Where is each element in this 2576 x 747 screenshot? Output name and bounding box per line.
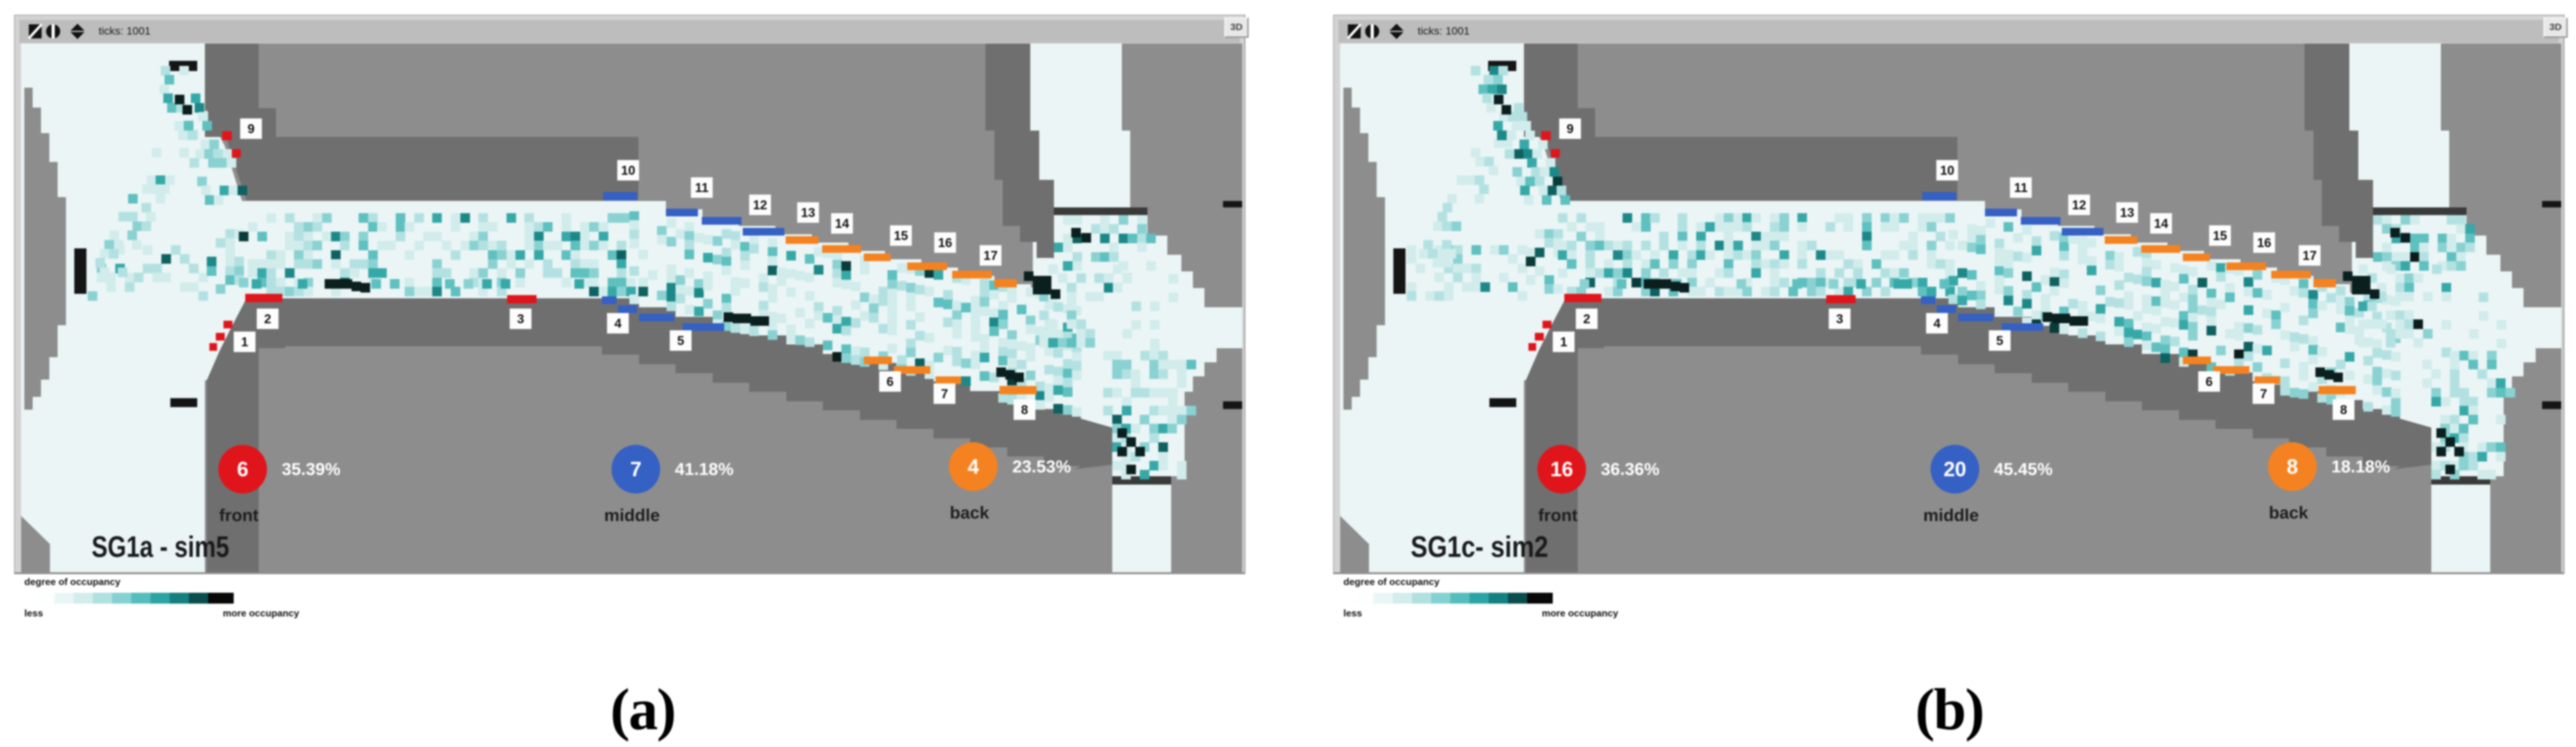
svg-text:2: 2 — [264, 312, 271, 326]
svg-text:41.18%: 41.18% — [675, 460, 734, 479]
svg-text:45.45%: 45.45% — [1994, 460, 2053, 479]
svg-text:9: 9 — [247, 122, 254, 136]
svg-text:17: 17 — [984, 249, 998, 263]
svg-text:6: 6 — [2205, 375, 2212, 389]
svg-text:15: 15 — [894, 229, 908, 243]
svg-text:SG1a - sim5: SG1a - sim5 — [92, 530, 229, 563]
svg-text:12: 12 — [753, 198, 767, 213]
svg-text:3: 3 — [1836, 312, 1843, 326]
svg-text:SG1c- sim2: SG1c- sim2 — [1411, 530, 1548, 563]
svg-text:front: front — [1538, 506, 1577, 525]
svg-text:18.18%: 18.18% — [2331, 457, 2390, 476]
svg-text:16: 16 — [938, 236, 952, 250]
svg-text:5: 5 — [677, 334, 684, 348]
svg-text:3: 3 — [517, 312, 524, 326]
svg-text:11: 11 — [2014, 181, 2027, 195]
svg-text:4: 4 — [1933, 317, 1941, 331]
svg-text:front: front — [219, 506, 258, 525]
svg-text:5: 5 — [1996, 334, 2003, 348]
svg-text:6: 6 — [886, 375, 893, 389]
svg-text:7: 7 — [941, 387, 948, 401]
svg-text:middle: middle — [1923, 506, 1979, 525]
svg-text:6: 6 — [237, 458, 248, 481]
svg-text:9: 9 — [1566, 122, 1573, 136]
svg-text:11: 11 — [695, 181, 708, 195]
svg-text:23.53%: 23.53% — [1012, 457, 1071, 476]
svg-text:4: 4 — [968, 455, 979, 478]
svg-text:16: 16 — [2257, 236, 2271, 250]
svg-text:7: 7 — [2260, 387, 2267, 401]
svg-text:back: back — [950, 503, 990, 522]
svg-text:8: 8 — [2287, 455, 2298, 478]
svg-text:2: 2 — [1583, 312, 1590, 326]
svg-text:17: 17 — [2303, 249, 2317, 263]
svg-text:13: 13 — [2120, 206, 2134, 220]
svg-text:8: 8 — [1021, 403, 1028, 417]
svg-text:13: 13 — [801, 206, 815, 220]
svg-text:36.36%: 36.36% — [1601, 460, 1660, 479]
svg-text:1: 1 — [1560, 335, 1567, 349]
svg-text:14: 14 — [835, 217, 850, 231]
svg-text:20: 20 — [1943, 458, 1966, 481]
svg-text:10: 10 — [621, 164, 635, 178]
svg-text:10: 10 — [1940, 164, 1954, 178]
svg-text:8: 8 — [2340, 403, 2347, 417]
svg-text:15: 15 — [2213, 229, 2227, 243]
svg-text:4: 4 — [614, 317, 622, 331]
svg-text:12: 12 — [2072, 198, 2086, 213]
svg-text:middle: middle — [604, 506, 660, 525]
svg-text:16: 16 — [1550, 458, 1573, 481]
svg-text:1: 1 — [241, 335, 248, 349]
svg-text:7: 7 — [630, 458, 642, 481]
svg-text:back: back — [2269, 503, 2309, 522]
svg-text:14: 14 — [2154, 217, 2169, 231]
svg-text:35.39%: 35.39% — [282, 460, 341, 479]
